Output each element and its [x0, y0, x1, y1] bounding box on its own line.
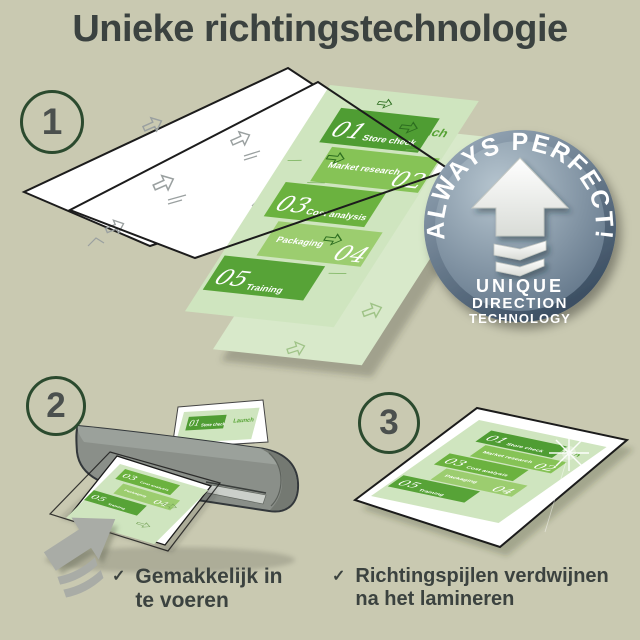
- badge-line-technology: TECHNOLOGY: [469, 311, 571, 326]
- check-icon: ✓: [112, 565, 125, 613]
- checklist-item-easy-feeding: ✓ Gemakkelijk in te voeren: [112, 565, 283, 613]
- check1-line1: Gemakkelijk in: [135, 565, 282, 589]
- check2-line2: na het lamineren: [355, 588, 608, 611]
- check2-line1: Richtingspijlen verdwijnen: [355, 565, 608, 588]
- step-1-circle: 1: [20, 90, 84, 154]
- check1-line2: te voeren: [135, 589, 282, 613]
- step-2-circle: 2: [26, 376, 86, 436]
- badge-line-direction: DIRECTION: [472, 295, 568, 312]
- always-perfect-badge: ALWAYS PERFECT! UNIQUE DIRECTION TECHNOL…: [408, 114, 634, 340]
- infographic-canvas: Unieke richtingstechnologie: [0, 0, 640, 640]
- step-3-circle: 3: [358, 392, 420, 454]
- checklist-item-arrows-disappear: ✓ Richtingspijlen verdwijnen na het lami…: [332, 565, 609, 611]
- badge-line-unique: UNIQUE: [476, 276, 564, 296]
- step-2-number: 2: [46, 386, 65, 426]
- page-title: Unieke richtingstechnologie: [0, 8, 640, 51]
- step-3-number: 3: [379, 403, 398, 443]
- step-1-number: 1: [42, 101, 63, 143]
- check-icon: ✓: [332, 565, 345, 611]
